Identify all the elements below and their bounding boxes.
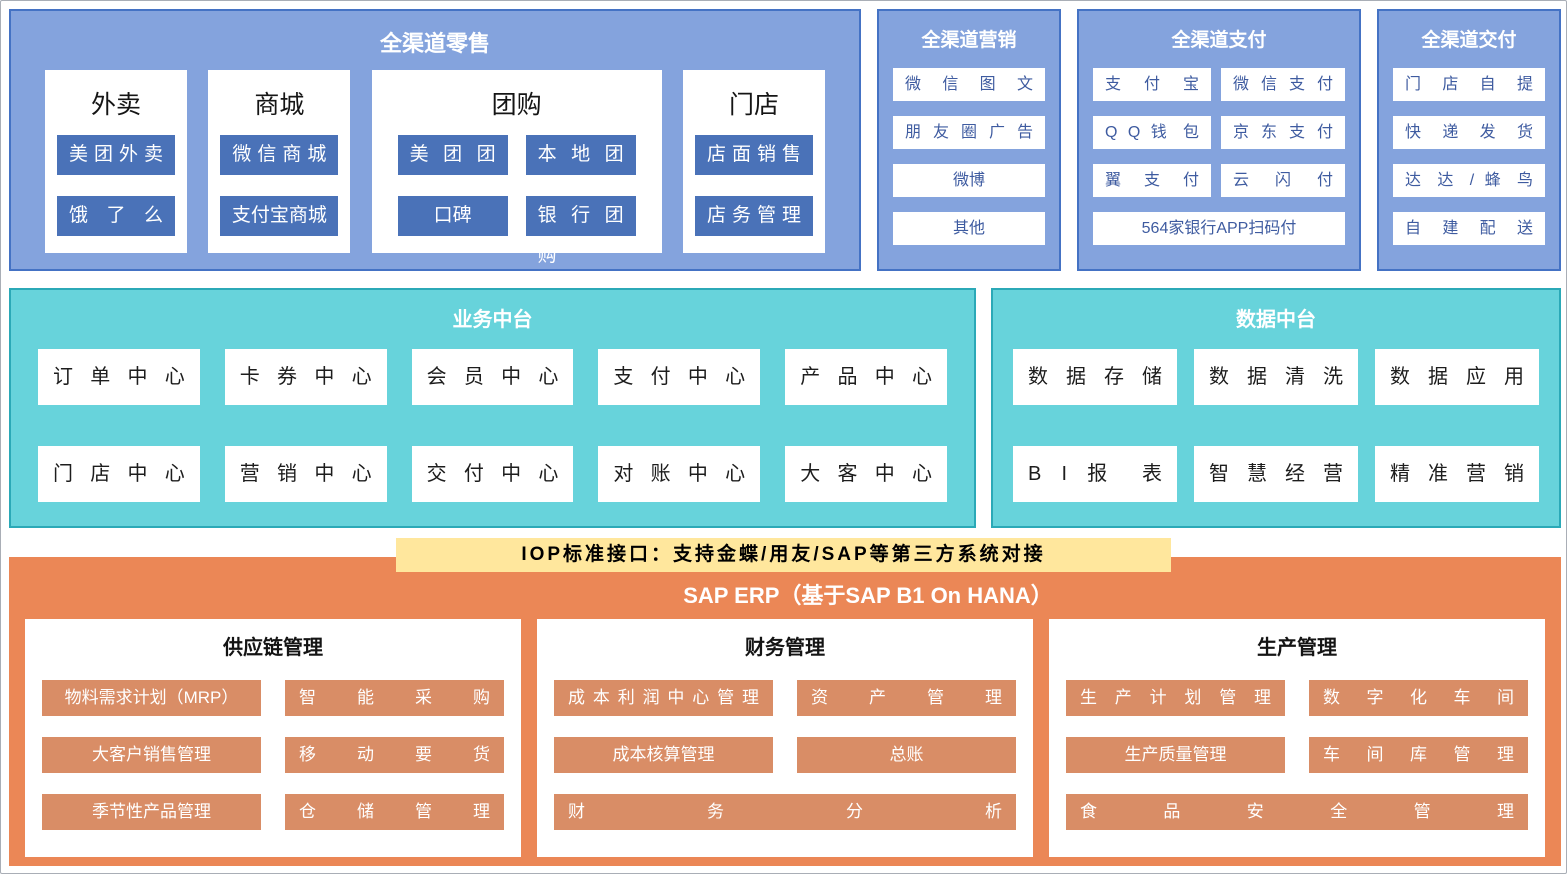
- chip: 微 信 商 城: [220, 135, 338, 175]
- chip: 生产质量管理: [1066, 737, 1285, 773]
- chip: 门 店 中 心: [38, 446, 200, 502]
- chip: 数 据 存 储: [1013, 349, 1177, 405]
- delivery-panel: 全渠道交付 门 店 自 提 快 递 发 货 达 达 / 蜂 鸟 自 建 配 送: [1377, 9, 1561, 271]
- middle-platform-row: 业务中台 订 单 中 心 卡 券 中 心 会 员 中 心 支 付 中 心 产 品…: [9, 288, 1561, 528]
- chip: 银 行 团 购: [526, 196, 636, 236]
- chip: 自 建 配 送: [1393, 212, 1545, 245]
- retail-section-takeout: 外卖 美 团 外 卖 饿 了 么: [45, 70, 187, 253]
- retail-section-store: 门店 店 面 销 售 店 务 管 理: [683, 70, 825, 253]
- chip: 微博: [893, 164, 1045, 197]
- chip: 成 本 利 润 中 心 管 理: [554, 680, 773, 716]
- chip: 数 据 应 用: [1375, 349, 1539, 405]
- chip-list: 成 本 利 润 中 心 管 理 资 产 管 理 成本核算管理 总账 财 务 分 …: [554, 662, 1016, 857]
- chip-list: 支 付 宝 微 信 支 付 Q Q 钱 包 京 东 支 付 翼 支 付 云 闪 …: [1079, 62, 1359, 269]
- retail-section-title: 外卖: [57, 70, 175, 125]
- erp-module-title: 财务管理: [554, 619, 1016, 662]
- chip: 生 产 计 划 管 理: [1066, 680, 1285, 716]
- chip-list: 微 信 图 文 朋 友 圈 广 告 微博 其他: [879, 62, 1059, 269]
- chip: 数 字 化 车 间: [1309, 680, 1528, 716]
- architecture-diagram: 全渠道零售 外卖 美 团 外 卖 饿 了 么 商城 微 信 商 城 支付宝商城: [0, 0, 1567, 874]
- delivery-panel-title: 全渠道交付: [1379, 11, 1559, 62]
- chip: 微 信 支 付: [1221, 68, 1345, 101]
- chip: 交 付 中 心: [412, 446, 574, 502]
- erp-module-production: 生产管理 生 产 计 划 管 理 数 字 化 车 间 生产质量管理 车 间 库 …: [1049, 619, 1545, 857]
- chip: 口碑: [398, 196, 508, 236]
- chip: 智 能 采 购: [285, 680, 504, 716]
- chip: 成本核算管理: [554, 737, 773, 773]
- chip: 店 面 销 售: [695, 135, 813, 175]
- chip: 达 达 / 蜂 鸟: [1393, 164, 1545, 197]
- chip: 店 务 管 理: [695, 196, 813, 236]
- retail-section-title: 门店: [695, 70, 813, 125]
- retail-section-title: 团购: [384, 70, 650, 125]
- chip-list: 美 团 外 卖 饿 了 么: [57, 125, 175, 253]
- payment-panel-title: 全渠道支付: [1079, 11, 1359, 62]
- chip: 564家银行APP扫码付: [1093, 212, 1345, 245]
- chip: 营 销 中 心: [225, 446, 387, 502]
- retail-panel-title: 全渠道零售: [11, 11, 859, 70]
- chip: 车 间 库 管 理: [1309, 737, 1528, 773]
- chip: 微 信 图 文: [893, 68, 1045, 101]
- retail-section-mall: 商城 微 信 商 城 支付宝商城: [208, 70, 350, 253]
- chip: 移 动 要 货: [285, 737, 504, 773]
- chip: 季节性产品管理: [42, 794, 261, 830]
- chip: 朋 友 圈 广 告: [893, 116, 1045, 149]
- iop-banner: IOP标准接口：支持金蝶/用友/SAP等第三方系统对接: [396, 538, 1171, 572]
- chip-list: 生 产 计 划 管 理 数 字 化 车 间 生产质量管理 车 间 库 管 理 食…: [1066, 662, 1528, 857]
- chip: 本 地 团 购: [526, 135, 636, 175]
- chip: 物料需求计划（MRP）: [42, 680, 261, 716]
- marketing-panel-title: 全渠道营销: [879, 11, 1059, 62]
- chip: B I 报 表: [1013, 446, 1177, 502]
- chip: 智 慧 经 营: [1194, 446, 1358, 502]
- erp-module-title: 生产管理: [1066, 619, 1528, 662]
- chip: 大客户销售管理: [42, 737, 261, 773]
- erp-body: 供应链管理 物料需求计划（MRP） 智 能 采 购 大客户销售管理 移 动 要 …: [9, 619, 1561, 857]
- retail-section-groupbuy: 团购 美 团 团 购 本 地 团 购 口碑 银 行 团 购: [372, 70, 662, 253]
- retail-body: 外卖 美 团 外 卖 饿 了 么 商城 微 信 商 城 支付宝商城 团购: [11, 70, 859, 269]
- retail-section-title: 商城: [220, 70, 338, 125]
- chip-list: 物料需求计划（MRP） 智 能 采 购 大客户销售管理 移 动 要 货 季节性产…: [42, 662, 504, 857]
- chip: 对 账 中 心: [598, 446, 760, 502]
- chip: 总账: [797, 737, 1016, 773]
- chip: 支付宝商城: [220, 196, 338, 236]
- chip: 大 客 中 心: [785, 446, 947, 502]
- chip: 快 递 发 货: [1393, 116, 1545, 149]
- chip-list: 数 据 存 储 数 据 清 洗 数 据 应 用 B I 报 表 智 慧 经 营 …: [993, 336, 1559, 526]
- chip: 门 店 自 提: [1393, 68, 1545, 101]
- chip: 其他: [893, 212, 1045, 245]
- chip: 京 东 支 付: [1221, 116, 1345, 149]
- marketing-panel: 全渠道营销 微 信 图 文 朋 友 圈 广 告 微博 其他: [877, 9, 1061, 271]
- chip: 产 品 中 心: [785, 349, 947, 405]
- erp-panel: IOP标准接口：支持金蝶/用友/SAP等第三方系统对接 SAP ERP（基于SA…: [9, 557, 1561, 866]
- chip: 云 闪 付: [1221, 164, 1345, 197]
- business-platform-title: 业务中台: [11, 290, 974, 336]
- chip: 精 准 营 销: [1375, 446, 1539, 502]
- chip-list: 美 团 团 购 本 地 团 购 口碑 银 行 团 购: [384, 125, 650, 253]
- erp-module-title: 供应链管理: [42, 619, 504, 662]
- chip: 仓 储 管 理: [285, 794, 504, 830]
- chip: 美 团 团 购: [398, 135, 508, 175]
- chip: 财 务 分 析: [554, 794, 1016, 830]
- chip: 支 付 宝: [1093, 68, 1211, 101]
- data-platform-panel: 数据中台 数 据 存 储 数 据 清 洗 数 据 应 用 B I 报 表 智 慧…: [991, 288, 1561, 528]
- payment-panel: 全渠道支付 支 付 宝 微 信 支 付 Q Q 钱 包 京 东 支 付 翼 支 …: [1077, 9, 1361, 271]
- chip: 饿 了 么: [57, 196, 175, 236]
- chip: 订 单 中 心: [38, 349, 200, 405]
- chip: 卡 券 中 心: [225, 349, 387, 405]
- chip-list: 门 店 自 提 快 递 发 货 达 达 / 蜂 鸟 自 建 配 送: [1379, 62, 1559, 269]
- channel-row: 全渠道零售 外卖 美 团 外 卖 饿 了 么 商城 微 信 商 城 支付宝商城: [9, 9, 1561, 271]
- chip: 会 员 中 心: [412, 349, 574, 405]
- chip: 资 产 管 理: [797, 680, 1016, 716]
- chip: 支 付 中 心: [598, 349, 760, 405]
- erp-module-finance: 财务管理 成 本 利 润 中 心 管 理 资 产 管 理 成本核算管理 总账 财…: [537, 619, 1033, 857]
- business-platform-panel: 业务中台 订 单 中 心 卡 券 中 心 会 员 中 心 支 付 中 心 产 品…: [9, 288, 976, 528]
- chip: Q Q 钱 包: [1093, 116, 1211, 149]
- chip: 食 品 安 全 管 理: [1066, 794, 1528, 830]
- chip-list: 微 信 商 城 支付宝商城: [220, 125, 338, 253]
- chip-list: 店 面 销 售 店 务 管 理: [695, 125, 813, 253]
- chip: 美 团 外 卖: [57, 135, 175, 175]
- erp-module-supply-chain: 供应链管理 物料需求计划（MRP） 智 能 采 购 大客户销售管理 移 动 要 …: [25, 619, 521, 857]
- retail-panel: 全渠道零售 外卖 美 团 外 卖 饿 了 么 商城 微 信 商 城 支付宝商城: [9, 9, 861, 271]
- chip: 翼 支 付: [1093, 164, 1211, 197]
- data-platform-title: 数据中台: [993, 290, 1559, 336]
- chip-list: 订 单 中 心 卡 券 中 心 会 员 中 心 支 付 中 心 产 品 中 心 …: [11, 336, 974, 526]
- chip: 数 据 清 洗: [1194, 349, 1358, 405]
